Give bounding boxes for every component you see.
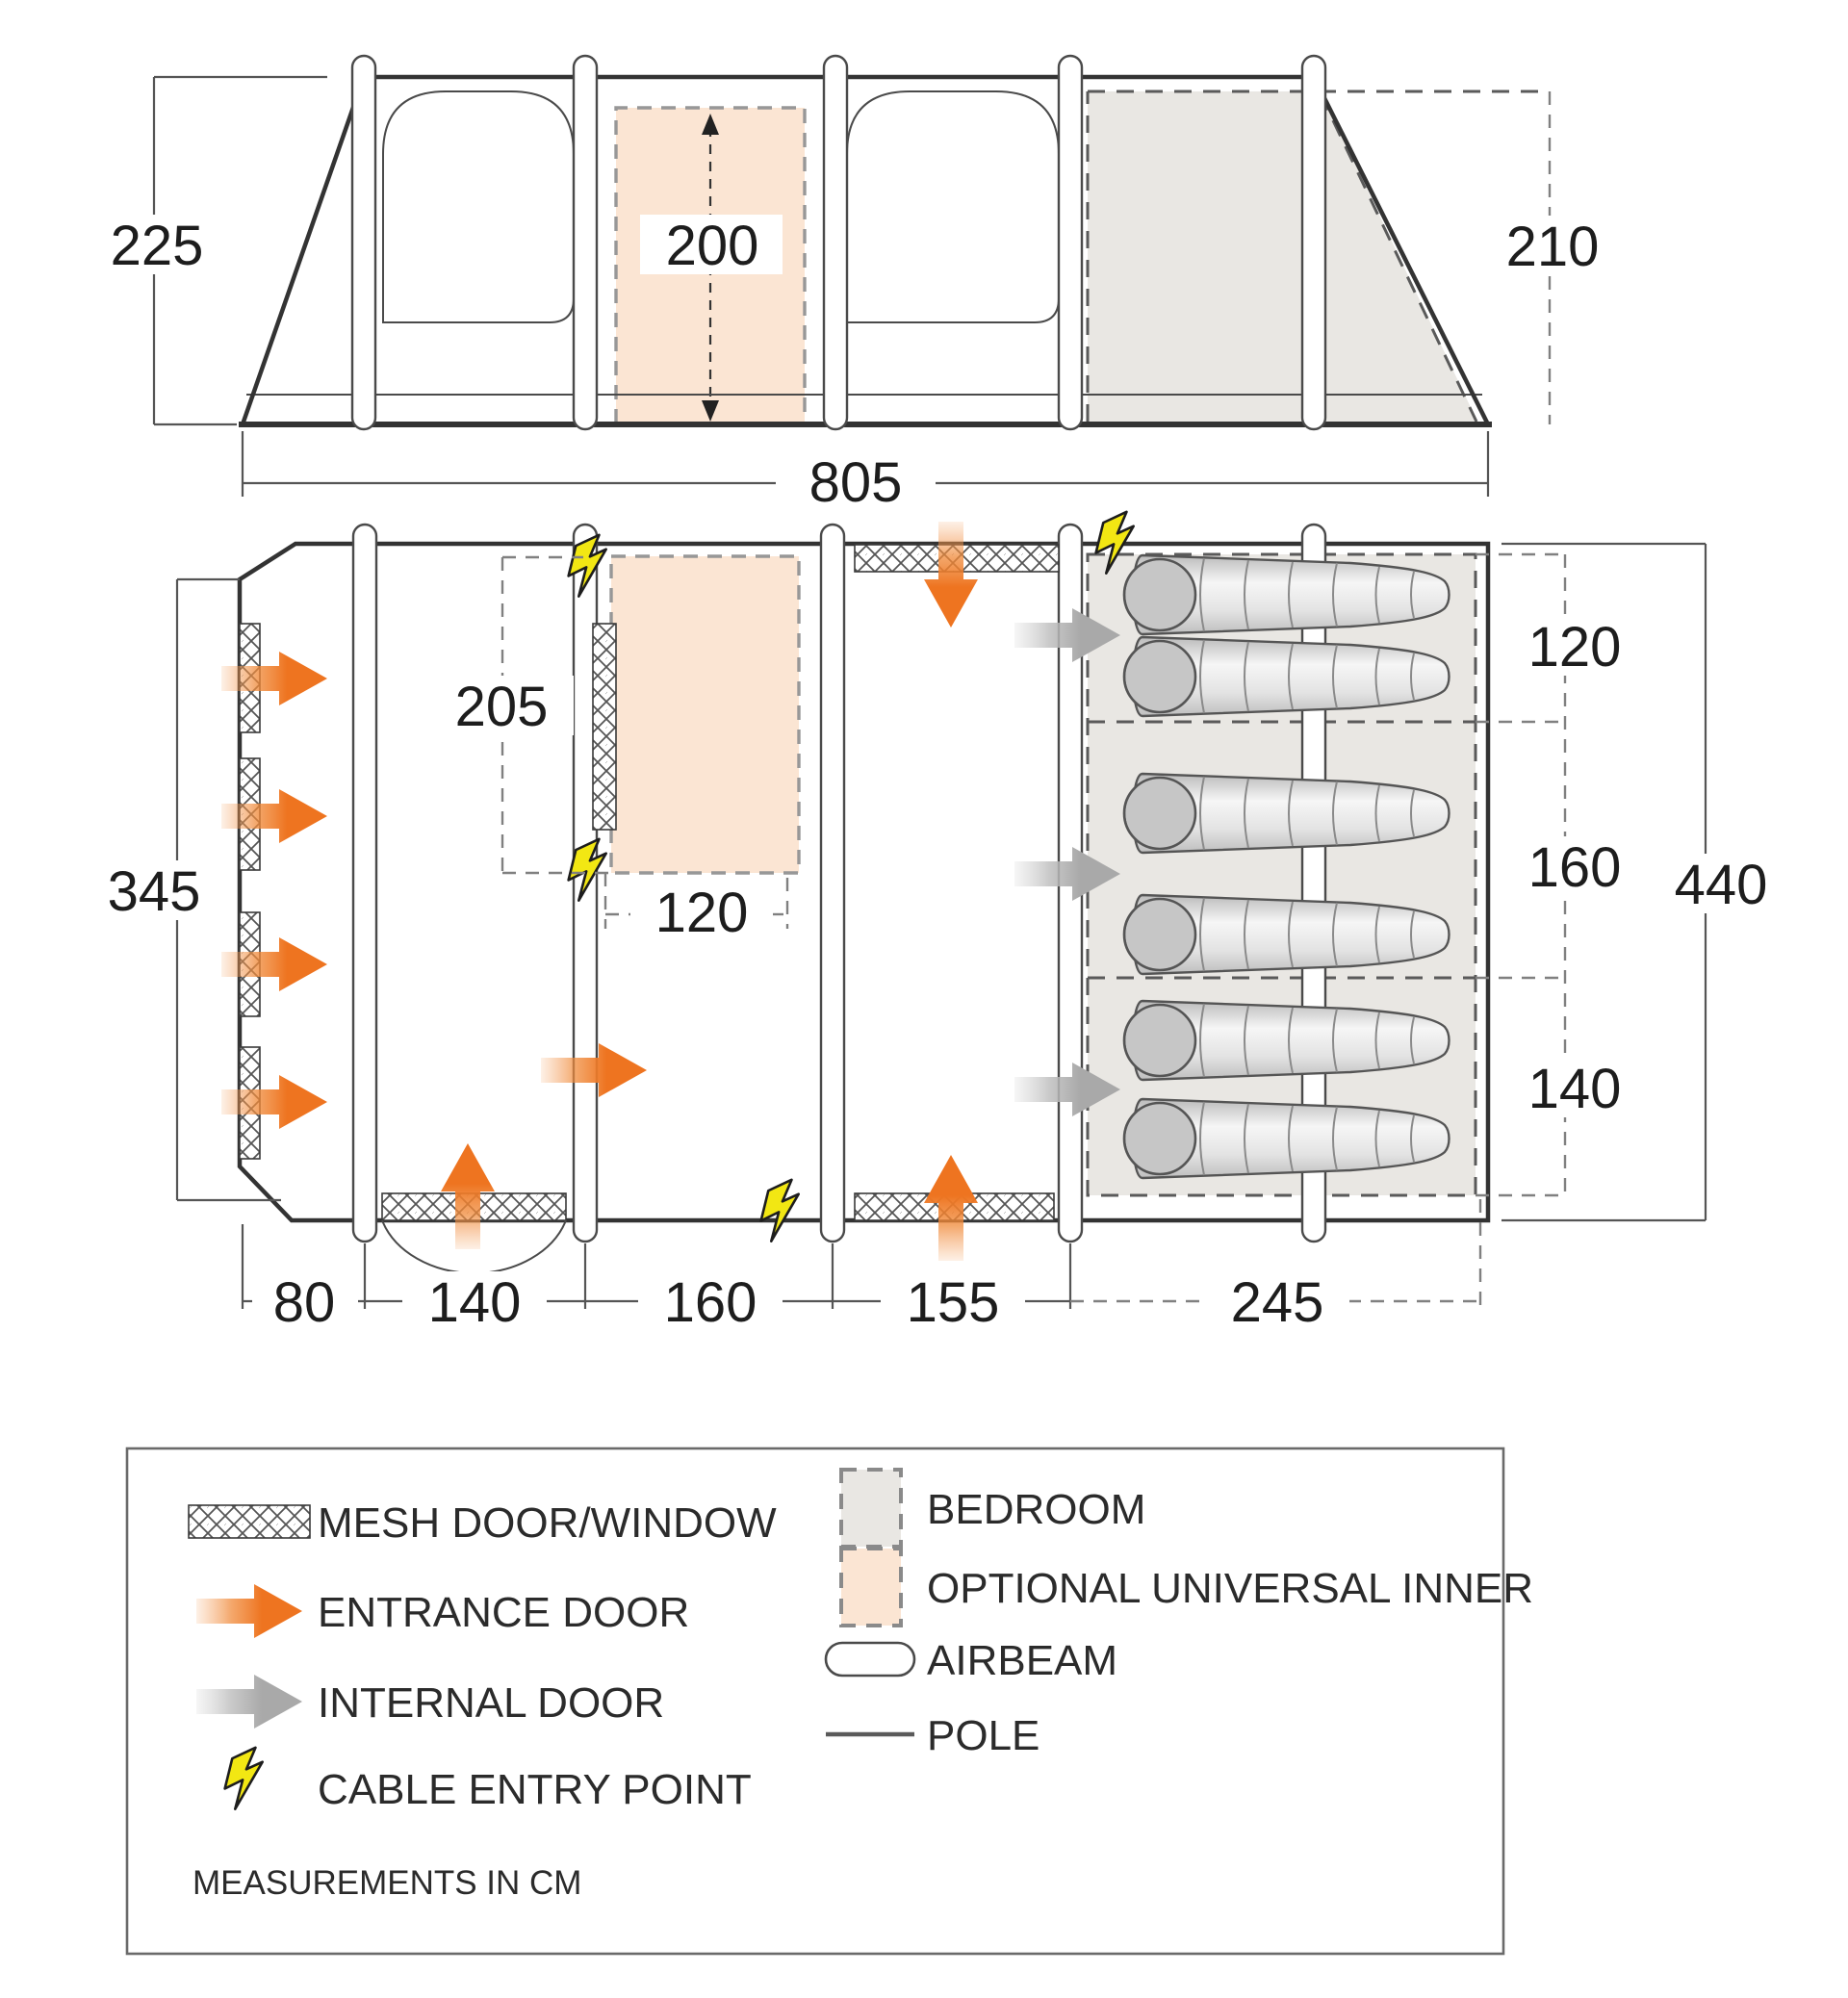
legend-cable-label: CABLE ENTRY POINT	[318, 1766, 752, 1813]
sleeping-bag	[1124, 555, 1450, 634]
dim-label-140-bed: 140	[1528, 1058, 1622, 1120]
dim-label-120-inner: 120	[655, 882, 749, 944]
legend-note: MEASUREMENTS IN CM	[192, 1864, 581, 1902]
bedroom-swatch-icon	[841, 1470, 901, 1547]
airbeam-pole	[824, 56, 847, 429]
dim-label-80: 80	[273, 1271, 336, 1334]
legend-airbeam-label: AIRBEAM	[927, 1637, 1117, 1684]
dim-label-120-bed: 120	[1528, 616, 1622, 679]
dim-elev-left-height: 225	[85, 77, 327, 424]
dim-elev-inner-height: 200	[640, 215, 783, 277]
side-elevation-view: 225 200 210 805	[85, 56, 1626, 514]
airbeam-pole	[574, 56, 597, 429]
sleeping-bag	[1124, 774, 1450, 853]
optional-inner-swatch-icon	[841, 1549, 901, 1626]
mesh-swatch-icon	[189, 1505, 310, 1538]
dim-elev-rear-height: 210	[1479, 91, 1626, 424]
dim-total-length: 805	[243, 431, 1488, 514]
dim-label-245: 245	[1231, 1271, 1324, 1334]
sleeping-bag	[1124, 895, 1450, 974]
airbeam-pole	[1302, 56, 1325, 429]
dim-inner-width: 120	[605, 873, 787, 944]
legend-pole-label: POLE	[927, 1712, 1039, 1759]
tent-spec-diagram: 225 200 210 805	[0, 0, 1848, 1998]
airbeam-pole	[353, 525, 376, 1242]
dim-label-140: 140	[428, 1271, 522, 1334]
floor-plan-view: 345 205 120 120 160	[81, 511, 1794, 1334]
elevation-front-slant	[243, 77, 364, 424]
mesh-internal-door	[593, 624, 616, 830]
optional-inner-area	[611, 556, 799, 873]
legend-mesh-label: MESH DOOR/WINDOW	[318, 1499, 777, 1547]
dim-label-160: 160	[664, 1271, 757, 1334]
dim-label-160-bed: 160	[1528, 836, 1622, 899]
dim-label-225: 225	[111, 215, 204, 277]
elevation-window-1	[383, 91, 574, 322]
sleeping-bag	[1124, 1001, 1450, 1080]
legend-optional-label: OPTIONAL UNIVERSAL INNER	[927, 1565, 1533, 1612]
elevation-window-2	[847, 91, 1059, 322]
sleeping-bag	[1124, 1099, 1450, 1178]
sleeping-bag	[1124, 637, 1450, 716]
dim-label-440: 440	[1675, 854, 1768, 916]
legend: MESH DOOR/WINDOW ENTRANCE DOOR INTERNAL …	[127, 1448, 1533, 1954]
dim-label-210: 210	[1506, 216, 1600, 278]
airbeam-pole	[1059, 56, 1082, 429]
dim-label-205: 205	[455, 676, 549, 738]
airbeam-pole	[352, 56, 375, 429]
diagram-canvas: 225 200 210 805	[0, 0, 1848, 1998]
legend-entrance-label: ENTRANCE DOOR	[318, 1589, 689, 1636]
dim-label-345: 345	[108, 860, 201, 923]
airbeam-icon	[826, 1643, 914, 1676]
airbeam-pole	[821, 525, 844, 1242]
dim-label-155: 155	[907, 1271, 1000, 1334]
legend-internal-label: INTERNAL DOOR	[318, 1679, 664, 1727]
legend-bedroom-label: BEDROOM	[927, 1486, 1145, 1533]
dim-label-805: 805	[809, 451, 903, 514]
dim-label-200: 200	[666, 215, 759, 277]
dim-bed-sections: 120 160 140	[1476, 554, 1647, 1195]
